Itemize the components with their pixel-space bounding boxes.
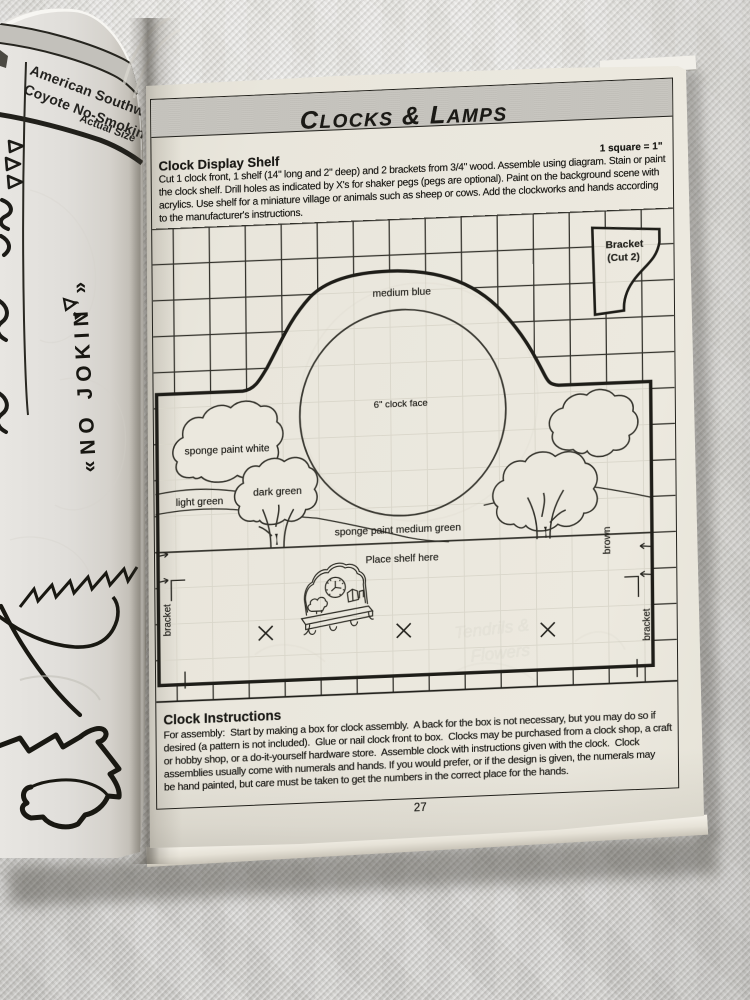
svg-text:dark green: dark green xyxy=(253,486,302,499)
svg-text:light green: light green xyxy=(176,496,224,509)
svg-text:(Cut 2): (Cut 2) xyxy=(607,252,640,264)
svg-text:brown: brown xyxy=(602,526,613,554)
svg-text:6" clock face: 6" clock face xyxy=(374,398,428,411)
svg-text:Bracket: Bracket xyxy=(606,239,644,252)
svg-text:Flowers: Flowers xyxy=(470,640,531,666)
svg-text:medium blue: medium blue xyxy=(373,286,432,299)
svg-text:bracket: bracket xyxy=(162,604,173,637)
